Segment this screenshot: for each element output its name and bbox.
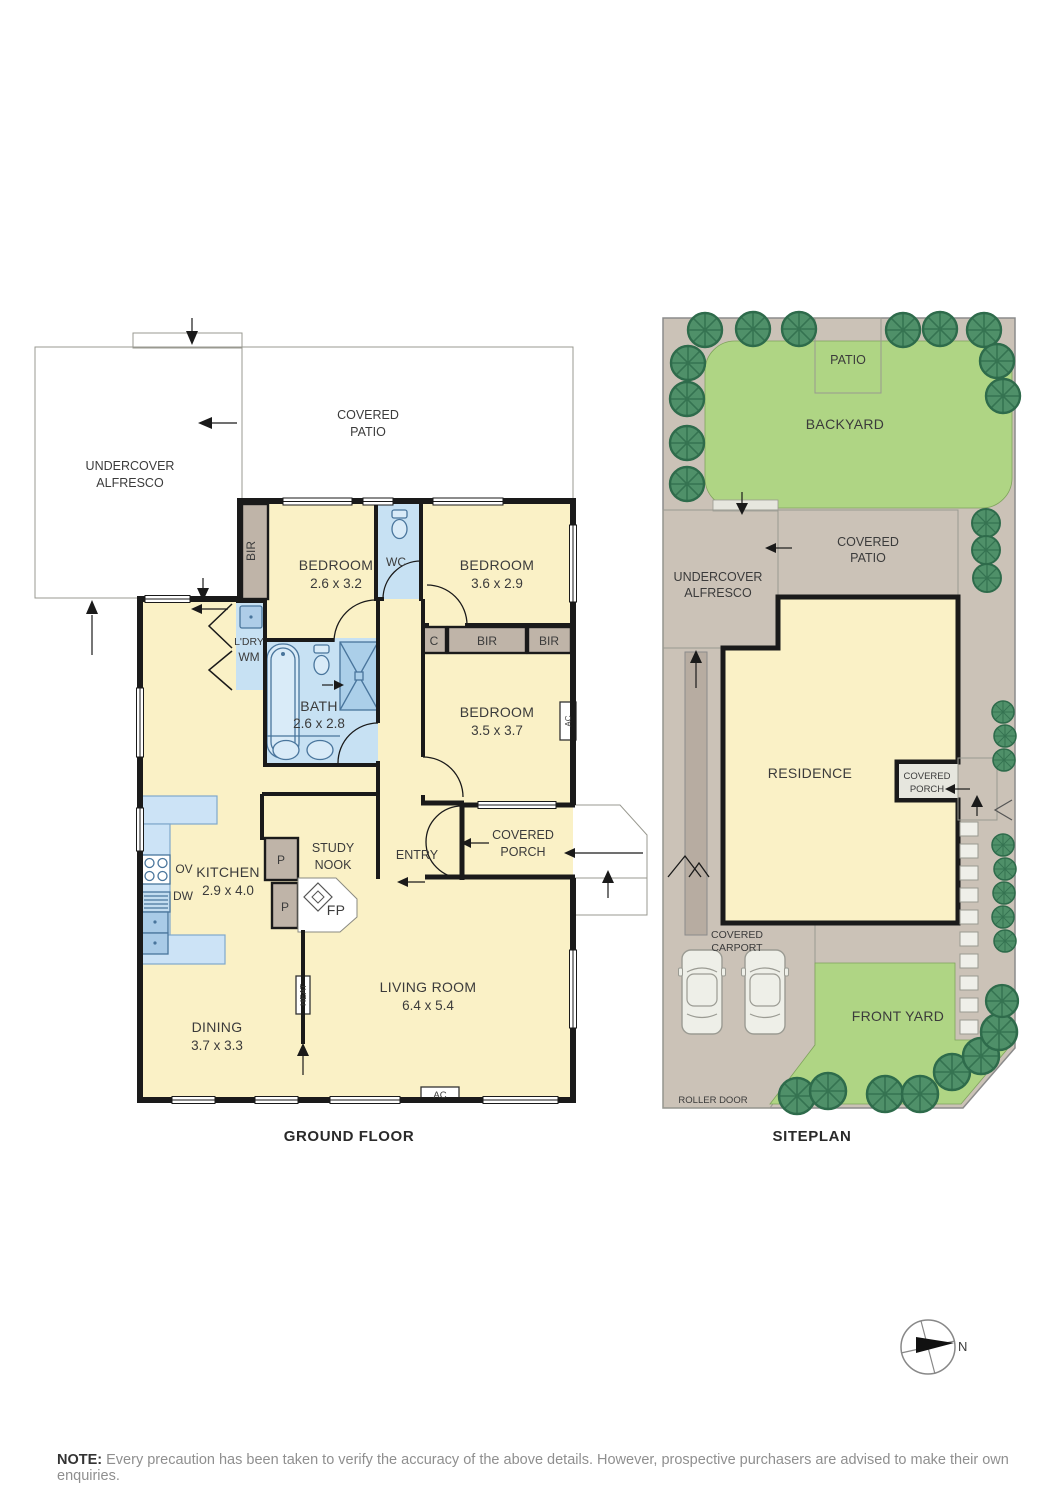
note-prefix: NOTE:: [57, 1452, 102, 1468]
label-alfresco-1: UNDERCOVER: [86, 459, 175, 473]
stove-icon: [142, 855, 170, 884]
label-living: LIVING ROOM: [380, 979, 477, 995]
label-bedroom2-dims: 3.6 x 2.9: [471, 576, 523, 591]
label-bath-dims: 2.6 x 2.8: [293, 716, 345, 731]
residence-footprint: [723, 597, 958, 923]
compass-north-label: N: [958, 1339, 967, 1354]
toilet-icon-bath: [314, 645, 329, 675]
label-dining: DINING: [192, 1019, 243, 1035]
site-label-backyard: BACKYARD: [806, 416, 884, 432]
label-fp: FP: [327, 902, 346, 918]
label-ac-living: AC: [433, 1090, 446, 1101]
label-wc: WC: [386, 555, 406, 569]
shower-icon: [340, 642, 378, 710]
label-ldry: L'DRY: [234, 636, 264, 648]
site-label-frontyard: FRONT YARD: [852, 1008, 944, 1024]
floorplan-page: COVERED PATIO UNDERCOVER ALFRESCO BEDROO…: [0, 0, 1061, 1500]
label-bir1: BIR: [244, 541, 258, 561]
driveway-path: [685, 652, 707, 935]
site-label-porch-1: COVERED: [904, 771, 951, 782]
label-wm: WM: [238, 650, 259, 664]
site-label-rollerdoor: ROLLER DOOR: [678, 1095, 747, 1106]
label-bedroom3-dims: 3.5 x 3.7: [471, 723, 523, 738]
site-label-residence: RESIDENCE: [768, 765, 852, 781]
label-study-2: NOOK: [315, 858, 352, 872]
label-dw: DW: [173, 889, 194, 903]
site-label-covpatio-2: PATIO: [850, 551, 886, 565]
label-porch-2: PORCH: [500, 845, 545, 859]
compass-icon: N: [901, 1320, 967, 1374]
siteplan: PATIO BACKYARD UNDERCOVER ALFRESCO COVER…: [663, 312, 1020, 1145]
disclaimer-note: NOTE: Every precaution has been taken to…: [57, 1452, 1017, 1484]
label-kitchen: KITCHEN: [196, 864, 260, 880]
site-label-patio: PATIO: [830, 353, 866, 367]
label-entry: ENTRY: [396, 848, 439, 862]
roof-bump: [133, 333, 242, 348]
site-label-carport-2: CARPORT: [711, 942, 763, 954]
label-bedroom1-dims: 2.6 x 3.2: [310, 576, 362, 591]
label-bedroom3: BEDROOM: [460, 704, 534, 720]
car-icon: [679, 950, 726, 1034]
siteplan-title: SITEPLAN: [773, 1128, 852, 1145]
toilet-icon-wc: [392, 510, 407, 539]
label-bir2: BIR: [477, 634, 497, 648]
label-bir3: BIR: [539, 634, 559, 648]
site-label-alfresco-1: UNDERCOVER: [674, 570, 763, 584]
label-porch-1: COVERED: [492, 828, 554, 842]
label-alfresco-2: ALFRESCO: [96, 476, 164, 490]
site-label-carport-1: COVERED: [711, 929, 763, 941]
label-p1: P: [277, 853, 285, 867]
label-bedroom1: BEDROOM: [299, 557, 373, 573]
label-kitchen-dims: 2.9 x 4.0: [202, 883, 254, 898]
laundry-sink-icon: [240, 606, 262, 628]
ground-floor-plan: COVERED PATIO UNDERCOVER ALFRESCO BEDROO…: [35, 318, 647, 1145]
site-label-covpatio-1: COVERED: [837, 535, 899, 549]
label-covered-patio-2: PATIO: [350, 425, 386, 439]
label-living-dims: 6.4 x 5.4: [402, 998, 454, 1013]
label-study-1: STUDY: [312, 841, 355, 855]
car-icon: [742, 950, 789, 1034]
label-ac-bedroom3: AC: [564, 715, 573, 726]
label-heat: HEAT: [298, 984, 308, 1006]
label-bath: BATH: [300, 698, 338, 714]
label-c: C: [430, 634, 439, 648]
plan-canvas: COVERED PATIO UNDERCOVER ALFRESCO BEDROO…: [0, 0, 1061, 1500]
ground-floor-title: GROUND FLOOR: [284, 1128, 415, 1145]
label-bedroom2: BEDROOM: [460, 557, 534, 573]
dishwasher-icon: [142, 892, 170, 912]
label-ov: OV: [175, 862, 192, 876]
site-label-porch-2: PORCH: [910, 784, 944, 795]
site-label-alfresco-2: ALFRESCO: [684, 586, 752, 600]
label-covered-patio-1: COVERED: [337, 408, 399, 422]
note-text: Every precaution has been taken to verif…: [57, 1452, 1009, 1484]
label-p2: P: [281, 900, 289, 914]
cabinet-icons: [142, 912, 168, 954]
label-dining-dims: 3.7 x 3.3: [191, 1038, 243, 1053]
